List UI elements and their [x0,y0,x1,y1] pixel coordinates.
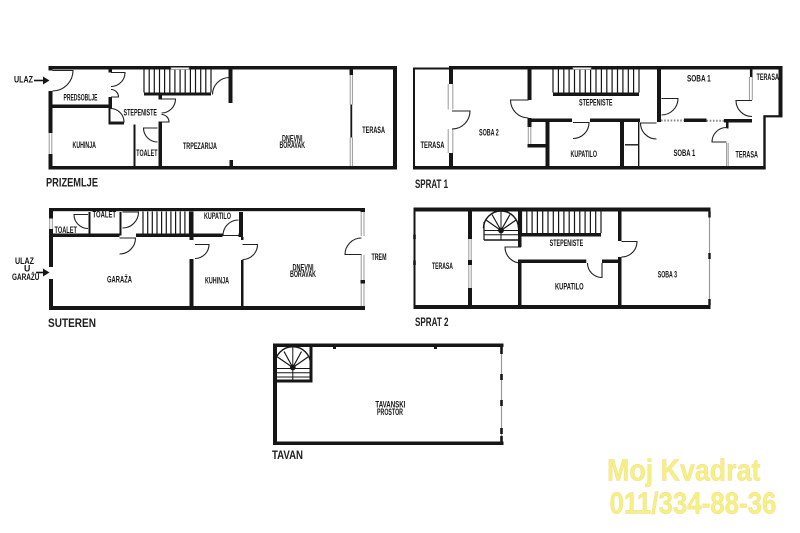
svg-text:TOALET: TOALET [136,147,158,158]
svg-text:PROSTOR: PROSTOR [377,406,404,417]
svg-text:KUHINJA: KUHINJA [205,275,230,286]
svg-text:BORAVAK: BORAVAK [290,269,317,280]
svg-text:KUPATILO: KUPATILO [204,211,231,222]
svg-text:TERASA: TERASA [362,125,385,136]
svg-text:011/334-88-36: 011/334-88-36 [610,486,777,521]
svg-text:BORAVAK: BORAVAK [280,139,306,150]
svg-text:SPRAT 1: SPRAT 1 [415,179,448,192]
svg-text:SOBA 1: SOBA 1 [674,148,696,159]
svg-text:SOBA 1: SOBA 1 [687,74,711,84]
svg-text:KUHINJA: KUHINJA [73,139,97,150]
svg-text:STEPENISTE: STEPENISTE [550,238,584,249]
svg-text:PRIZEMLJE: PRIZEMLJE [46,176,98,190]
svg-text:TERASA: TERASA [432,260,453,271]
svg-text:GARAŽU: GARAŽU [12,272,40,282]
svg-text:TERASA: TERASA [757,72,780,83]
svg-text:SOBA 3: SOBA 3 [658,269,677,280]
svg-text:PREDSOBLJE: PREDSOBLJE [64,93,98,103]
svg-text:TERASA: TERASA [736,149,759,160]
svg-text:KUPATILO: KUPATILO [555,281,584,292]
svg-text:SUTEREN: SUTEREN [48,317,96,330]
svg-text:KUPATILO: KUPATILO [571,148,598,159]
svg-text:SOBA 2: SOBA 2 [479,127,499,138]
svg-text:TOALET: TOALET [93,209,117,220]
svg-text:ULAZ: ULAZ [14,75,33,85]
svg-text:TERASA: TERASA [421,140,445,151]
svg-text:TREM: TREM [372,252,387,263]
svg-text:GARAŽA: GARAŽA [107,274,132,285]
svg-text:STEPENISTE: STEPENISTE [124,107,158,118]
svg-text:Moj Kvadrat: Moj Kvadrat [607,454,761,488]
svg-text:TAVAN: TAVAN [272,449,303,462]
svg-text:SPRAT 2: SPRAT 2 [415,317,449,330]
svg-text:STEPENISTE: STEPENISTE [579,97,613,108]
svg-text:TRPEZARIJA: TRPEZARIJA [183,140,218,151]
